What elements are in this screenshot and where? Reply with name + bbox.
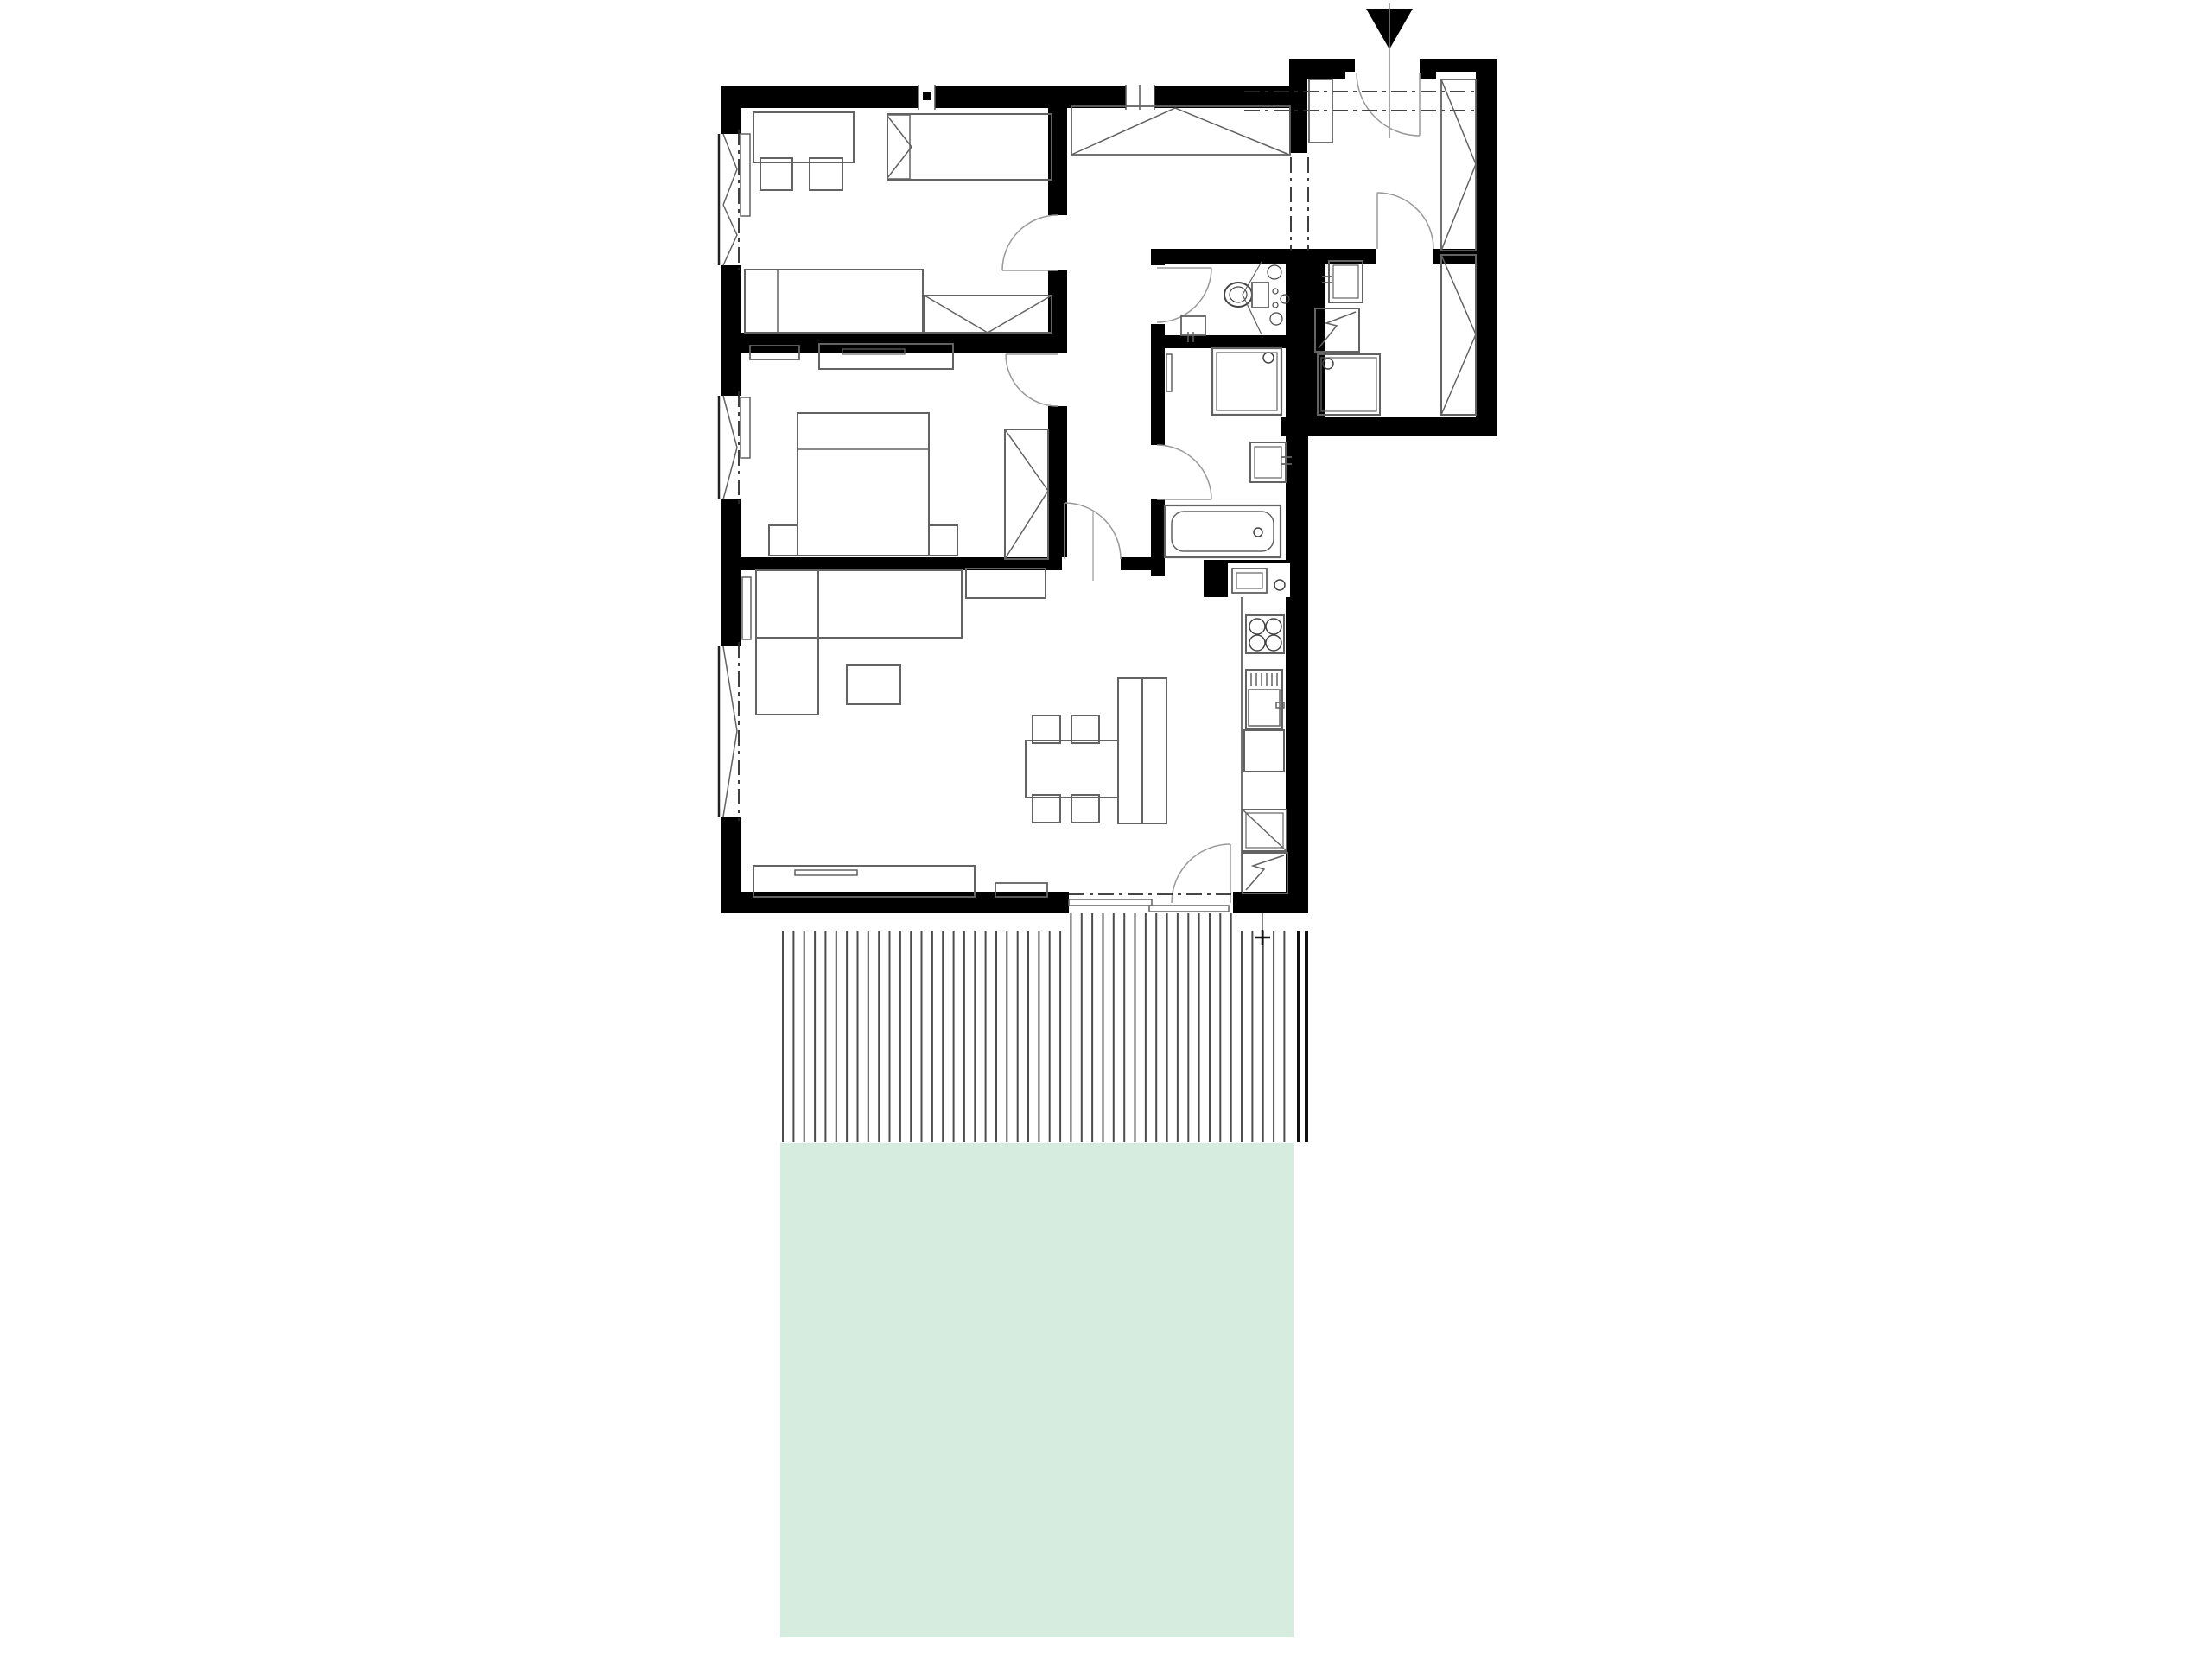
utility-sink-inner: [1333, 265, 1358, 298]
kitchen-island-b: [1142, 678, 1166, 823]
bedroom1-door-swing: [1002, 215, 1058, 270]
dryer-inner: [1321, 358, 1376, 411]
washbasin-inner: [1255, 447, 1281, 478]
bath-left-wall-c: [1151, 499, 1165, 576]
terrace-sliding-panel-a: [1069, 899, 1152, 906]
terrace-sliding-panel-b: [1149, 906, 1229, 912]
terrace: [783, 913, 1306, 1142]
bathtub: [1165, 505, 1281, 557]
burner-3: [1249, 635, 1265, 651]
window2-casement: [723, 396, 737, 499]
utility-door-swing: [1377, 193, 1433, 249]
entrance-marker: [1366, 3, 1413, 138]
dining: [1026, 678, 1166, 823]
base-cabinet: [1244, 730, 1284, 772]
double-bed: [798, 413, 929, 556]
hall-closet-diag-b: [1175, 108, 1289, 155]
living-room: [742, 569, 1047, 897]
side-cabinet: [966, 569, 1046, 598]
entrance-top-a: [1289, 59, 1355, 72]
dryer: [1318, 354, 1380, 415]
bed-b: [745, 270, 923, 333]
entry-wardrobe-diag-b: [1441, 164, 1476, 251]
bed-a: [887, 114, 1052, 180]
bedroom-2: [750, 344, 1048, 559]
left-wall-c: [721, 499, 741, 646]
desk: [753, 112, 854, 162]
walls: [721, 59, 1497, 913]
wardrobe-b1-diag-b: [988, 296, 1052, 333]
wardrobe-b1-diag-a: [925, 296, 988, 333]
wc-accessory-1: [1268, 265, 1281, 279]
wall-dot-marker: [923, 92, 931, 100]
wc-bath-divider: [1151, 335, 1294, 348]
wc: [1181, 262, 1289, 342]
wardrobe-b2: [1005, 429, 1048, 559]
living-top-wall-b: [1121, 557, 1151, 570]
entrance-door-swing: [1357, 73, 1420, 136]
utility-room: [1315, 255, 1476, 415]
shower-drain: [1263, 353, 1274, 363]
entrance-jamb-a: [1307, 72, 1345, 79]
window1-casement-b: [723, 205, 737, 265]
window3-casement: [723, 646, 737, 817]
bed-a-pillow: [887, 115, 910, 179]
bath-left-wall-a: [1151, 249, 1165, 265]
wall-top-c: [1154, 86, 1289, 108]
utility-wardrobe-diag-a: [1441, 255, 1476, 334]
kitchen-island-a: [1118, 678, 1142, 823]
burner-1: [1249, 619, 1265, 634]
wall-top-b: [935, 86, 1126, 108]
window2-sill: [741, 397, 750, 458]
bathroom: [1165, 348, 1292, 557]
bedroom2-door-swing: [1006, 354, 1058, 406]
kitchen-niche-left: [1204, 560, 1228, 597]
dining-chair-d: [1071, 795, 1099, 823]
shower-tray: [1212, 348, 1281, 415]
floorplan-page: [0, 0, 2212, 1659]
oven-door: [1249, 690, 1280, 726]
toilet-tank: [1252, 283, 1268, 308]
window-bench: [742, 577, 751, 639]
entry-wardrobe: [1441, 79, 1476, 251]
left-wall-a: [721, 86, 741, 134]
sofa-seat: [756, 570, 962, 638]
entrance-jamb-b: [1420, 72, 1436, 79]
wc-accessory-5: [1270, 313, 1282, 325]
window1-sill: [741, 134, 750, 216]
wardrobe-b1: [925, 296, 1052, 333]
wc-accessory-2: [1273, 289, 1278, 294]
windows: [719, 130, 750, 821]
hall-closet-diag-a: [1071, 108, 1175, 155]
utility-sink: [1329, 261, 1363, 302]
nightstand-a: [769, 525, 798, 556]
bath-left-wall-b: [1151, 324, 1165, 445]
floorplan-canvas: [0, 0, 2212, 1659]
bathtub-inner: [1172, 512, 1274, 551]
dining-chair-c: [1033, 795, 1060, 823]
toilet-bowl-inner: [1230, 287, 1247, 302]
burner-2: [1266, 619, 1281, 634]
bath-door-swing: [1157, 445, 1211, 499]
fridge-diag: [1243, 810, 1287, 851]
bed-a-pillow-diag-1: [887, 116, 912, 147]
washbasin: [1250, 442, 1286, 482]
wall-top-a: [721, 86, 918, 108]
hall-closet: [1071, 106, 1290, 155]
sofa-chaise: [756, 570, 818, 715]
entrance-left-wall: [1289, 59, 1307, 153]
garden: [780, 1143, 1294, 1637]
burner-4: [1266, 635, 1281, 651]
wardrobe-b2-diag-b: [1005, 491, 1048, 559]
dining-chair-b: [1071, 715, 1099, 743]
dining-table: [1026, 741, 1118, 798]
nightstand-b: [929, 525, 957, 556]
left-wall-b: [721, 265, 741, 396]
bed-a-pillow-diag-2: [887, 147, 912, 178]
bedroom-1: [745, 112, 1052, 333]
utility-wardrobe-diag-b: [1441, 334, 1476, 415]
annex-bottom-wall: [1281, 417, 1497, 436]
dishwasher: [1243, 853, 1287, 893]
bath-radiator: [1166, 354, 1172, 391]
shower-tray-inner: [1217, 353, 1277, 410]
window1-casement-a: [723, 134, 737, 205]
entrance-right-wall: [1476, 59, 1497, 436]
bottom-wall-b: [1233, 892, 1308, 913]
bottom-wall-a: [721, 892, 1069, 913]
wc-accessory-4: [1273, 302, 1278, 308]
kitchen: [1228, 563, 1290, 893]
wc-door-swing: [1157, 268, 1211, 322]
dishwasher-zigzag: [1246, 855, 1284, 890]
bathtub-drain: [1254, 528, 1262, 537]
tv-screen: [795, 870, 857, 875]
wardrobe-b2-diag-a: [1005, 429, 1048, 491]
dining-chair-a: [1033, 715, 1060, 743]
coffee-table: [847, 665, 900, 704]
garden-lawn: [780, 1143, 1294, 1637]
utility-wardrobe: [1441, 255, 1476, 415]
